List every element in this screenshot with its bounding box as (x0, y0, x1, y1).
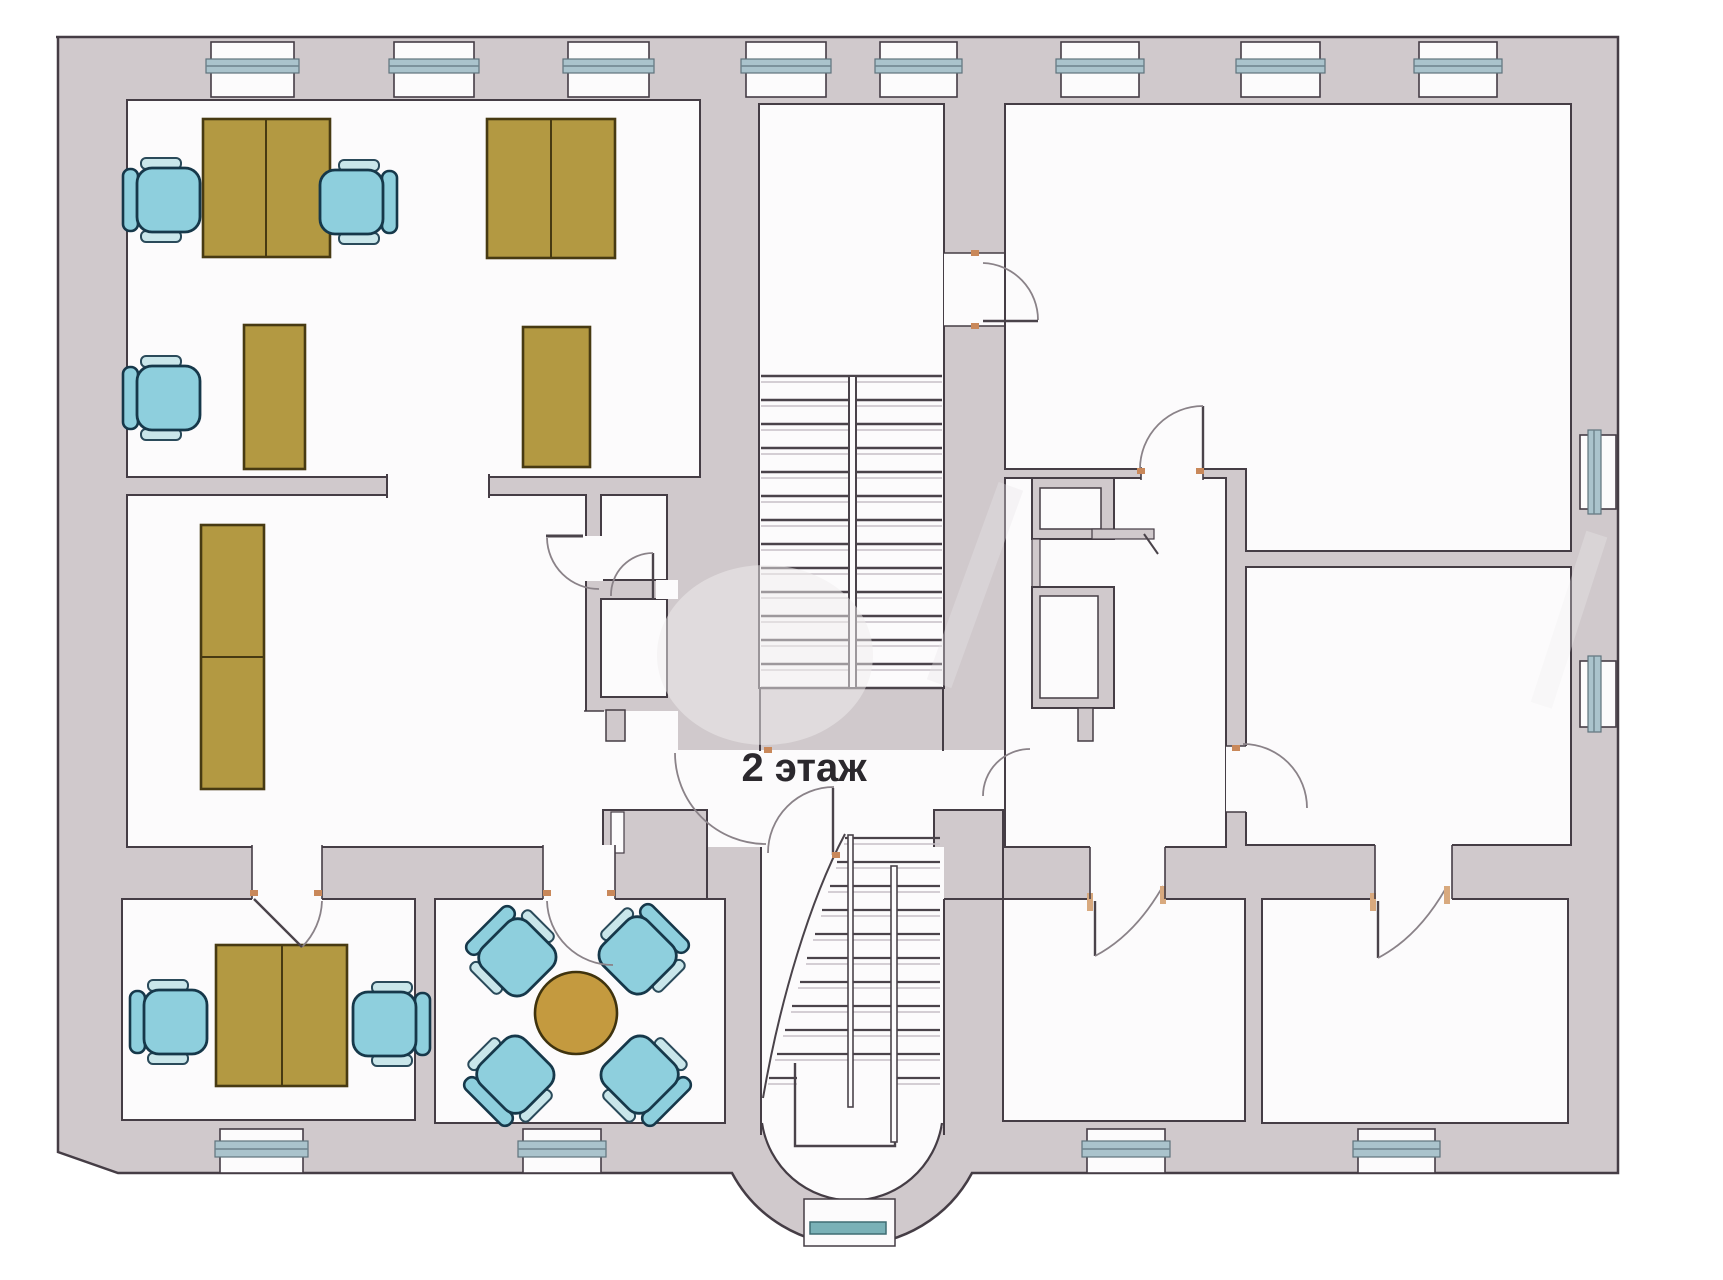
svg-text:2 этаж: 2 этаж (741, 746, 867, 790)
